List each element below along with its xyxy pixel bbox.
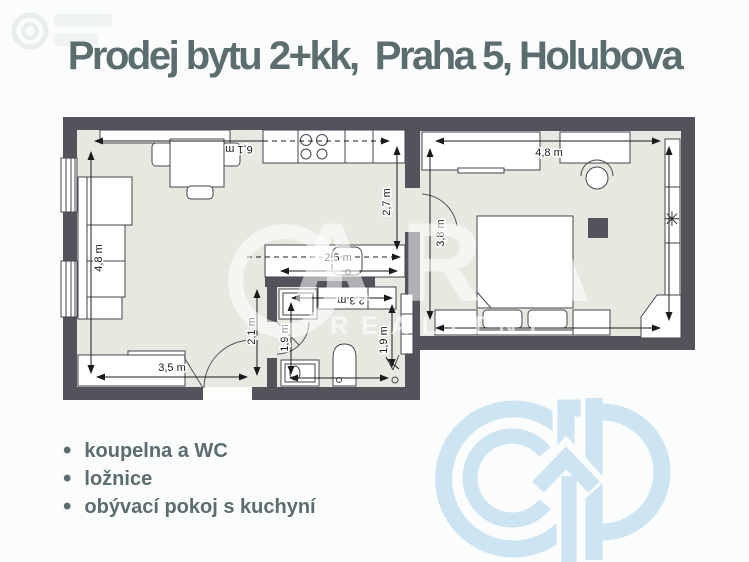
wardrobe [422, 132, 540, 170]
feature-label: ložnice [84, 468, 152, 491]
bathroom-sink [281, 360, 319, 386]
bathtub [333, 344, 356, 386]
dim-kitchen-depth: 2,7 m [381, 188, 393, 216]
dim-bath-height-right: 1,9 m [378, 326, 390, 354]
dining-chair [152, 143, 172, 166]
kitchen-counter [263, 130, 405, 163]
bullet-icon: • [63, 465, 71, 493]
bullet-icon: • [63, 493, 71, 521]
bullet-icon: • [63, 437, 71, 465]
dim-living-bottom-width: 3,5 m [158, 362, 186, 374]
nightstand [435, 310, 477, 335]
dim-bedroom-width: 4,8 m [535, 147, 563, 159]
pillow [483, 310, 522, 328]
dim-bedroom-height: 3,8 m [435, 219, 447, 247]
bedroom-door-opening [405, 188, 420, 232]
floor-plan: ✳ [58, 110, 700, 410]
dim-entry-height: 2,1 m [246, 317, 258, 345]
tall-shelf [401, 294, 413, 354]
window [61, 158, 77, 212]
window [61, 261, 77, 317]
plant-icon: ✳ [664, 207, 681, 231]
page-title: Prodej bytu 2+kk, Praha 5, Holubova [0, 34, 749, 79]
dim-island-width: 2,5 m [324, 252, 352, 264]
rug [588, 218, 608, 238]
nightstand [573, 310, 610, 335]
feature-label: koupelna a WC [84, 440, 227, 463]
list-item: • obývací pokoj s kuchyní [63, 493, 316, 521]
dim-bath-height-left: 1,9 m [279, 324, 291, 352]
dining-table [170, 139, 224, 187]
flyer: Prodej bytu 2+kk, Praha 5, Holubova [0, 0, 749, 562]
pillow [528, 310, 567, 328]
dim-hall-width: 2,3 m [337, 294, 365, 306]
dining-chair [187, 186, 213, 199]
entrance-door-opening [203, 387, 252, 400]
feature-label: obývací pokoj s kuchyní [84, 496, 315, 519]
brand-logo [433, 390, 747, 562]
list-item: • koupelna a WC [63, 437, 316, 465]
list-item: • ložnice [63, 465, 316, 493]
dim-living-height: 4,8 m [93, 244, 105, 272]
feature-list: • koupelna a WC • ložnice • obývací poko… [63, 437, 316, 521]
desk [560, 132, 630, 163]
dim-living-width: 6,1 m [225, 143, 253, 155]
